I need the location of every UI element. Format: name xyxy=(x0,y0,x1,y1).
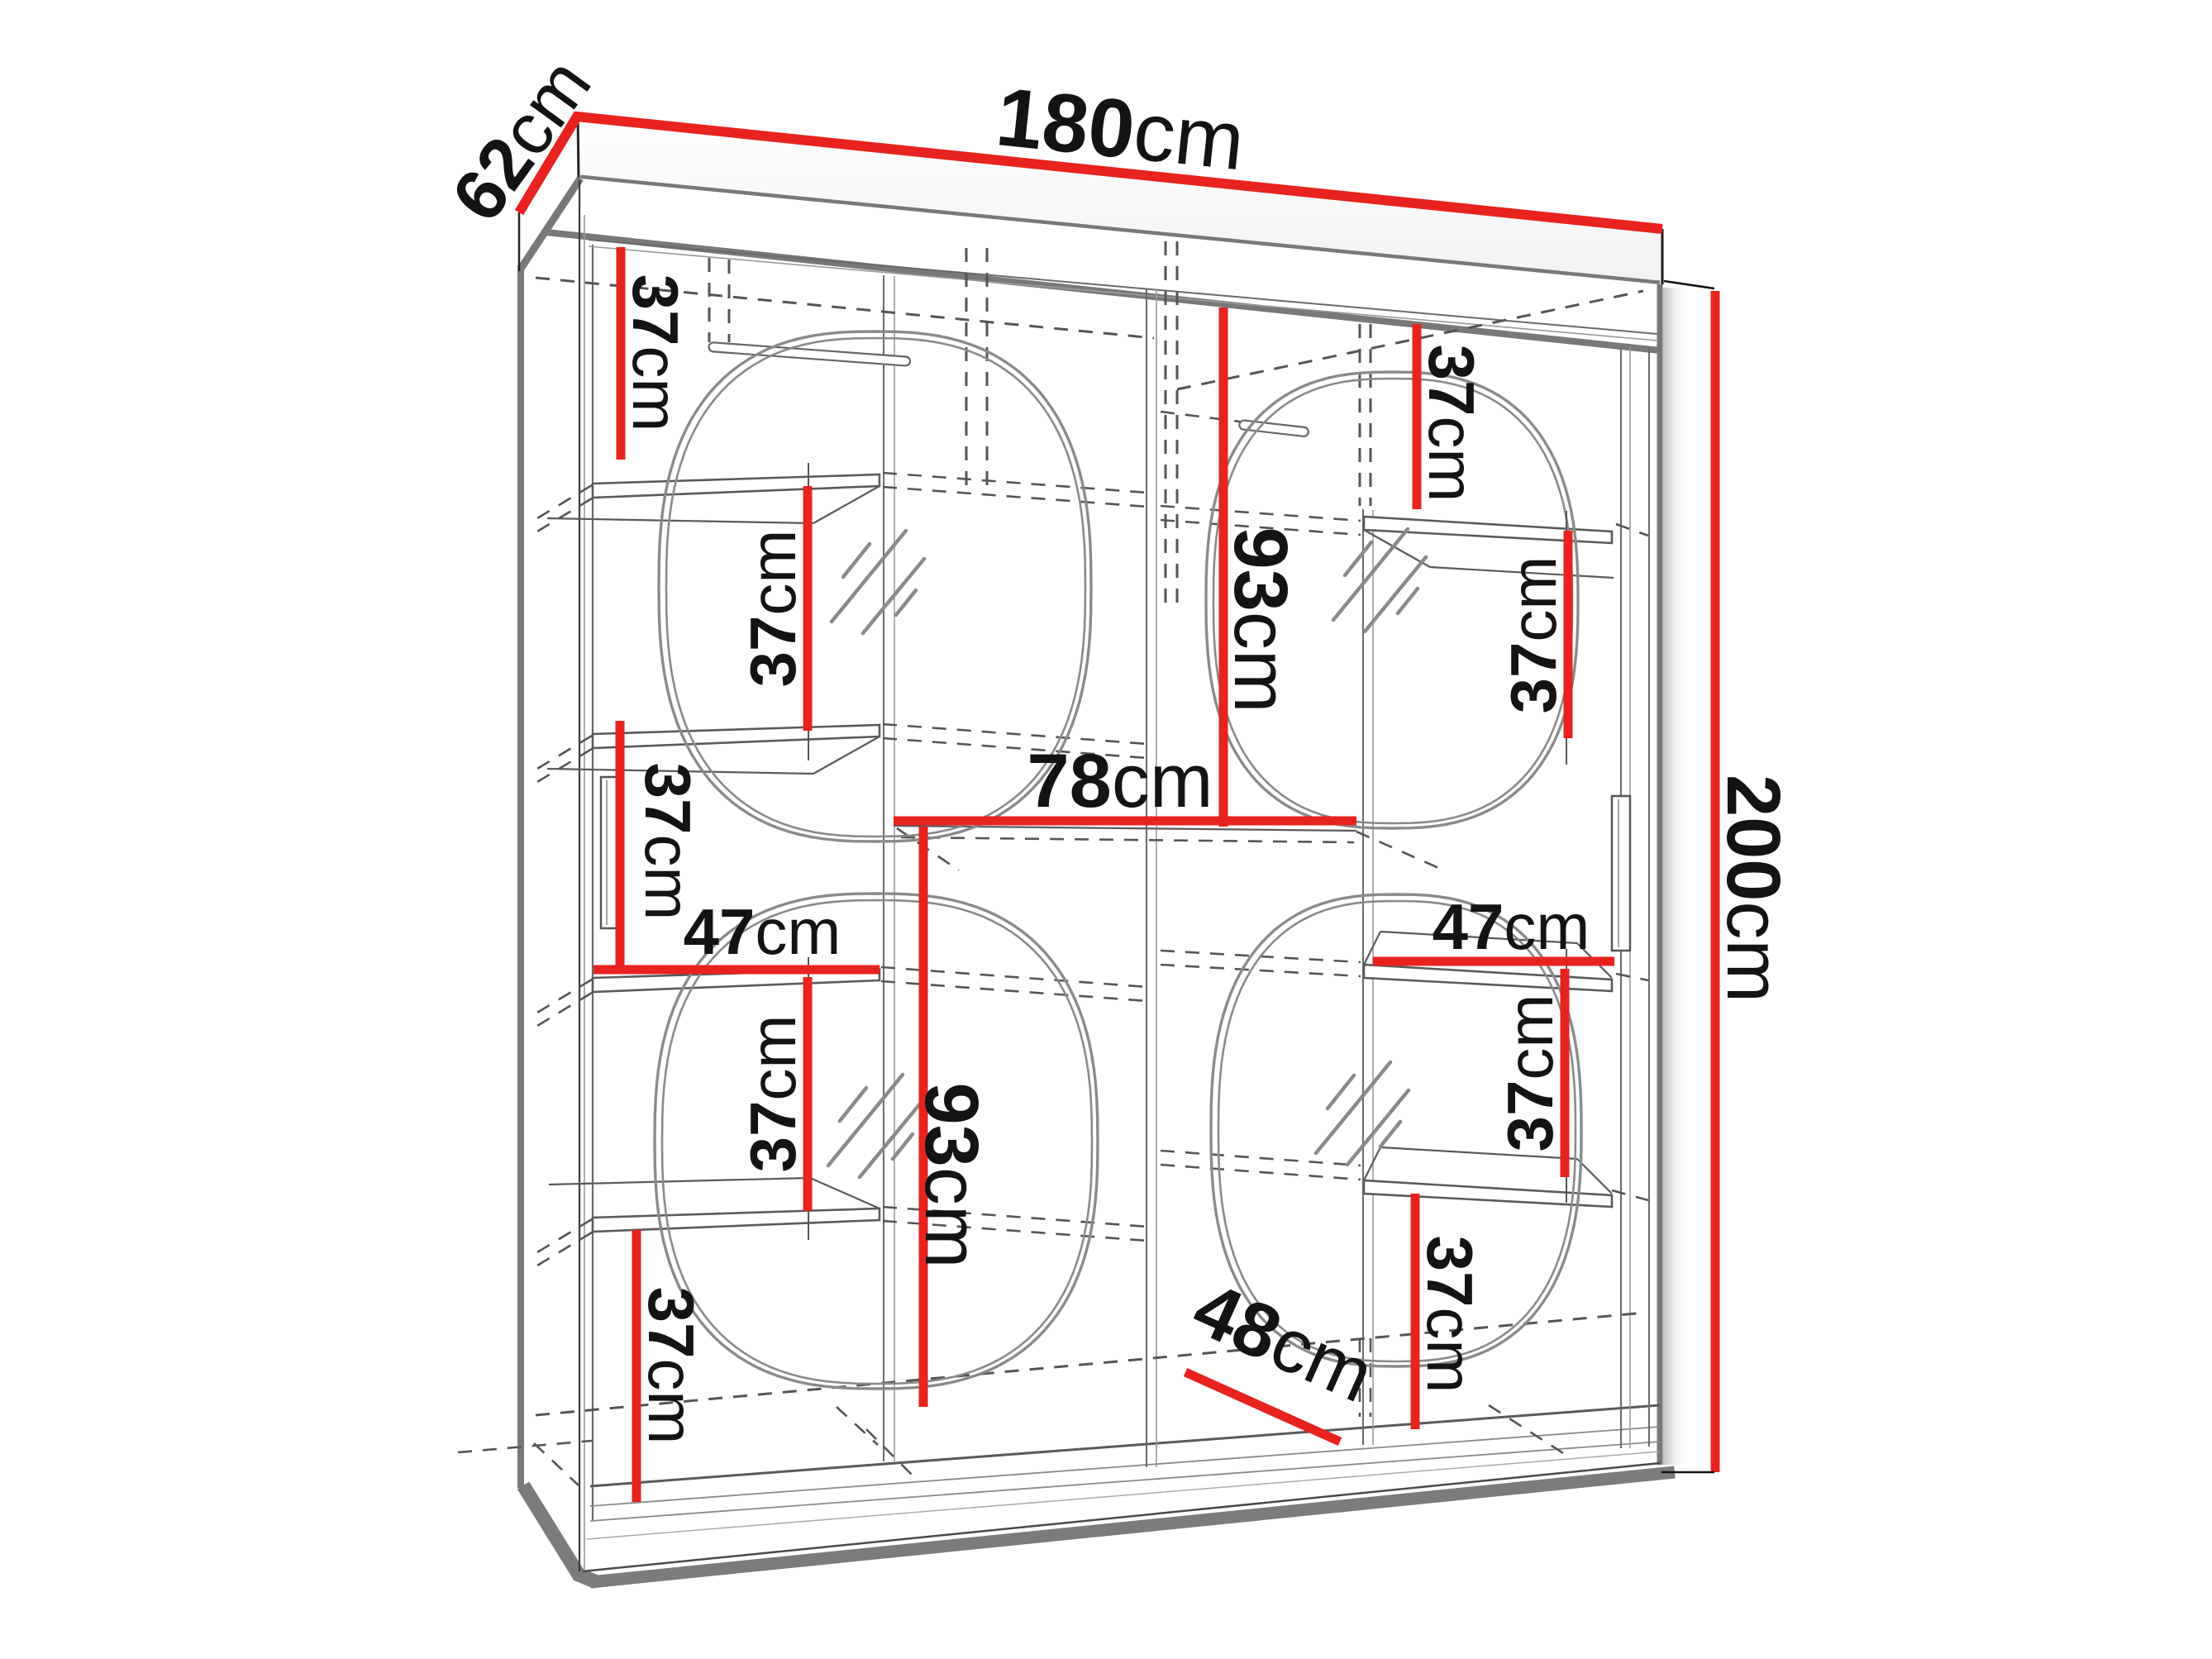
svg-text:37cm: 37cm xyxy=(635,1287,708,1445)
svg-text:37cm: 37cm xyxy=(1494,994,1566,1152)
svg-text:37cm: 37cm xyxy=(737,530,809,688)
svg-text:47cm: 47cm xyxy=(1433,890,1590,963)
svg-text:37cm: 37cm xyxy=(1497,556,1570,714)
svg-text:93cm: 93cm xyxy=(1218,527,1303,713)
svg-text:37cm: 37cm xyxy=(619,274,692,432)
svg-text:37cm: 37cm xyxy=(1415,345,1488,503)
svg-text:78cm: 78cm xyxy=(1027,739,1213,823)
svg-text:93cm: 93cm xyxy=(909,1083,994,1269)
svg-text:47cm: 47cm xyxy=(684,895,841,968)
svg-text:37cm: 37cm xyxy=(737,1015,809,1173)
svg-text:200cm: 200cm xyxy=(1711,775,1795,1003)
svg-text:37cm: 37cm xyxy=(1413,1236,1486,1394)
